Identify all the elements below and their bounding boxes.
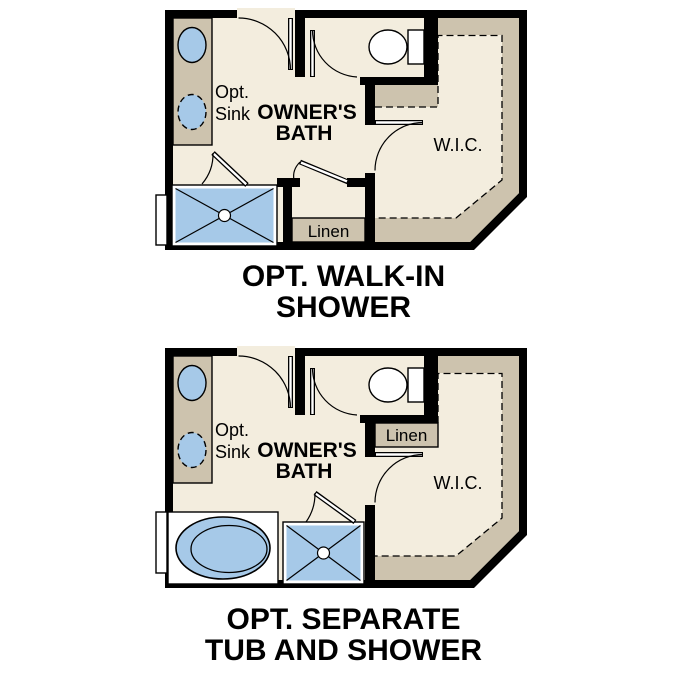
caption-line1: OPT. SEPARATE [227,603,461,636]
floorplan-walk-in-shower: Opt. Sink OWNER'S BATH Linen W.I.C. [150,8,530,260]
label-opt-sink-line1: Opt. [215,82,249,102]
optional-sink-fixture [178,95,206,130]
toilet-room-left-wall [295,18,305,77]
bath-south-wall-right [347,178,365,187]
wic-wall-lower [365,173,375,242]
toilet-tank [408,30,424,64]
toilet-room-left-wall [295,356,305,415]
caption-line2: SHOWER [276,291,411,324]
wic-wall-upper [365,77,375,125]
window [156,512,167,573]
tub-fixture [168,512,278,584]
sink-fixture [178,366,206,401]
caption-line2: TUB AND SHOWER [205,634,482,667]
floorplan-separate-tub-and-shower: Opt. Sink OWNER'S BATH Linen W.I.C. [150,346,530,598]
label-opt-sink-line1: Opt. [215,420,249,440]
sink-fixture [178,28,206,63]
optional-sink-fixture [178,433,206,468]
label-owners-bath-line2: BATH [276,460,333,483]
shower-fixture [283,522,364,584]
label-wic: W.I.C. [434,473,483,493]
entry-door-opening [237,8,295,18]
walk-in-shower-fixture [172,185,277,246]
label-opt-sink-line2: Sink [215,442,251,462]
linen-left-wall [283,187,292,242]
caption-walk-in-shower: OPT. WALK-IN SHOWER [0,261,687,323]
entry-door-opening [237,346,295,356]
caption-line1: OPT. WALK-IN [242,260,445,293]
toilet-room-right-wall [424,18,438,85]
caption-separate-tub-and-shower: OPT. SEPARATE TUB AND SHOWER [0,604,687,666]
shower-drain [318,547,330,559]
label-opt-sink-line2: Sink [215,104,251,124]
label-wic: W.I.C. [434,135,483,155]
bath-south-wall-left [277,178,300,187]
floorplan-page: Opt. Sink OWNER'S BATH Linen W.I.C. OPT.… [0,0,687,687]
toilet-room-right-wall [424,356,438,423]
label-linen: Linen [386,426,428,445]
window [156,195,167,245]
toilet-bowl [369,368,407,402]
wic-wall-upper [365,415,375,457]
label-linen: Linen [308,222,350,241]
toilet-tank [408,368,424,402]
wic-wall-lower [365,505,375,580]
toilet-bowl [369,30,407,64]
toilet-fixture [369,368,424,402]
toilet-fixture [369,30,424,64]
shower-drain [219,210,231,222]
label-owners-bath-line2: BATH [276,122,333,145]
label-owners-bath-line1: OWNER'S [257,101,357,124]
label-owners-bath-line1: OWNER'S [257,439,357,462]
